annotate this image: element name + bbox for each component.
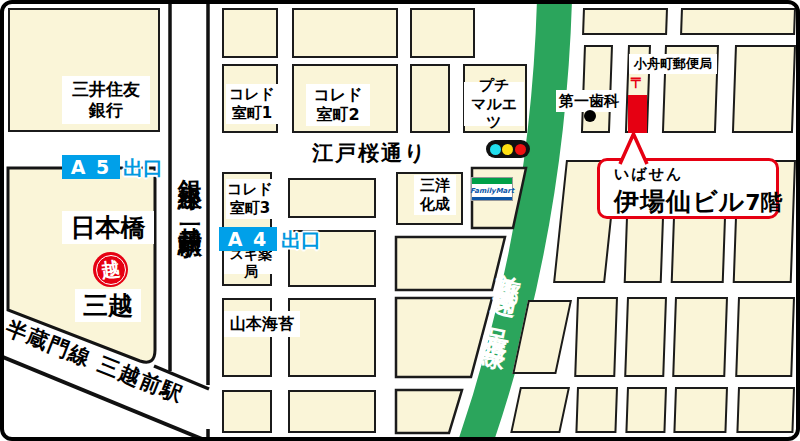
access-map: 銀座線 三越前駅 半蔵門線 三越前駅 首都高速1号上野線 江戸桜通り 三井住友 …	[0, 0, 800, 441]
callout-pointer	[0, 0, 800, 441]
